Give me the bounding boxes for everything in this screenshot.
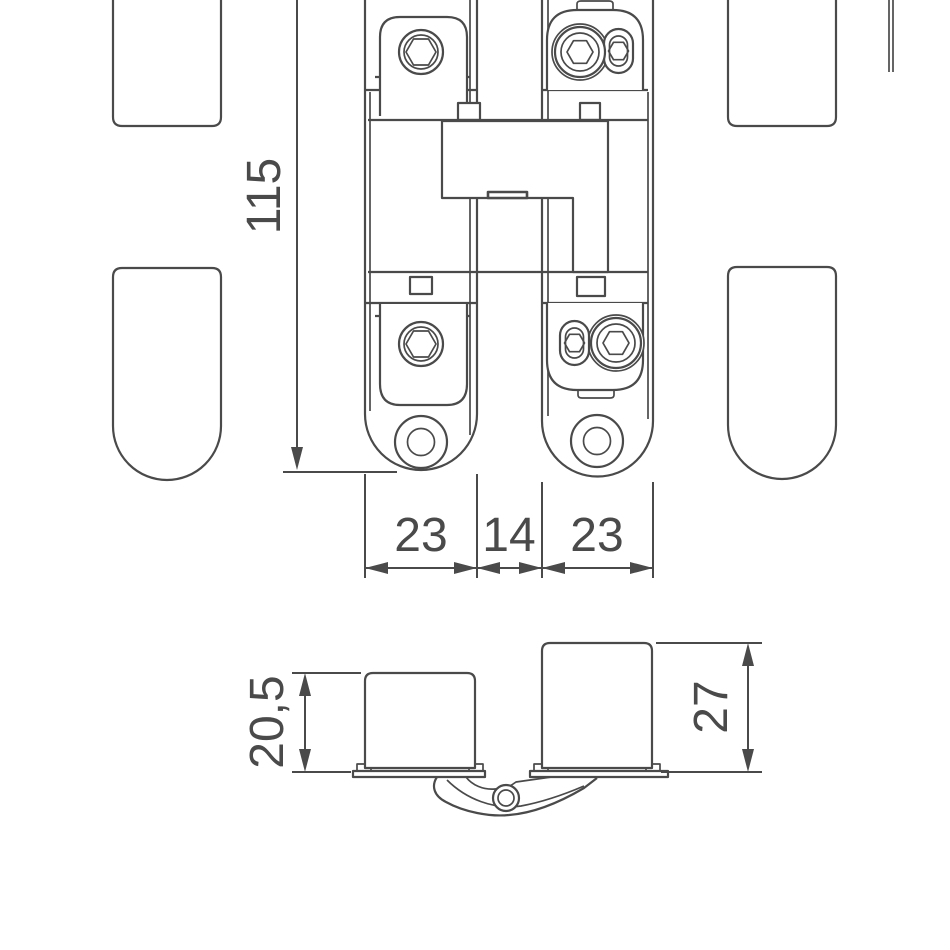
dim-23-left-label: 23 — [394, 509, 447, 562]
cover-cap-bottom-right — [728, 267, 836, 479]
hinge-left-plate — [365, 0, 480, 470]
dim-14-label: 14 — [482, 509, 535, 562]
dim-205-arrow-up — [299, 673, 311, 696]
left-plate-pivot-hole-inner — [408, 429, 435, 456]
dim-14-arrow-right — [519, 562, 542, 574]
cover-cap-bottom-left — [113, 268, 221, 480]
dim-115-arrow-down — [291, 447, 303, 470]
hinge-center-arm — [442, 121, 608, 272]
top-right-capsule-screw-inner — [610, 36, 628, 66]
hinge-technical-drawing: 115 23 14 23 — [0, 0, 950, 950]
cover-cap-top-right — [728, 0, 836, 126]
dimension-widths: 23 14 23 — [365, 474, 653, 578]
dim-14-arrow-left — [477, 562, 500, 574]
dimension-27: 27 — [656, 643, 762, 772]
front-view: 115 23 14 23 — [113, 0, 893, 578]
right-plate-top-notch — [580, 103, 600, 120]
dim-23r-arrow-left — [542, 562, 565, 574]
left-plate-top-notch — [458, 103, 480, 120]
drawing-canvas: 115 23 14 23 — [0, 0, 950, 950]
section-view: 20,5 27 — [241, 643, 762, 815]
dim-23l-arrow-right — [454, 562, 477, 574]
section-panel-left — [353, 673, 485, 777]
right-plate-top-tab — [577, 1, 613, 9]
bottom-left-screw-inner — [404, 327, 438, 361]
left-panel-baseplate — [353, 771, 485, 777]
dim-23l-arrow-left — [365, 562, 388, 574]
right-plate-bottom-notch — [577, 277, 605, 296]
linkage-right-lower-edge — [509, 778, 597, 815]
dimension-115: 115 — [238, 0, 397, 472]
linkage-pivot-inner — [498, 790, 514, 806]
right-plate-pivot-hole-inner — [584, 428, 611, 455]
cover-cap-top-left — [113, 0, 221, 126]
right-plate-bottom-tab — [578, 391, 614, 398]
dim-27-label: 27 — [685, 680, 738, 733]
dim-27-arrow-down — [742, 749, 754, 772]
top-left-screw-inner — [404, 35, 438, 69]
left-plate-bottom-notch — [410, 277, 432, 294]
dim-27-arrow-up — [742, 643, 754, 666]
edge-cut-lines — [889, 0, 893, 72]
cover-caps — [113, 0, 836, 480]
dimension-20-5: 20,5 — [241, 673, 361, 772]
center-arm-insert-bar — [488, 192, 527, 198]
dim-205-label: 20,5 — [241, 675, 294, 768]
dim-23r-arrow-right — [630, 562, 653, 574]
left-panel-body — [365, 673, 475, 768]
right-panel-baseplate — [530, 771, 668, 777]
bottom-right-capsule-screw-inner — [566, 328, 584, 358]
dim-23-right-label: 23 — [570, 509, 623, 562]
right-panel-body — [542, 643, 652, 768]
dim-205-arrow-down — [299, 749, 311, 772]
section-panel-right — [530, 643, 668, 777]
dim-115-label: 115 — [238, 158, 291, 235]
